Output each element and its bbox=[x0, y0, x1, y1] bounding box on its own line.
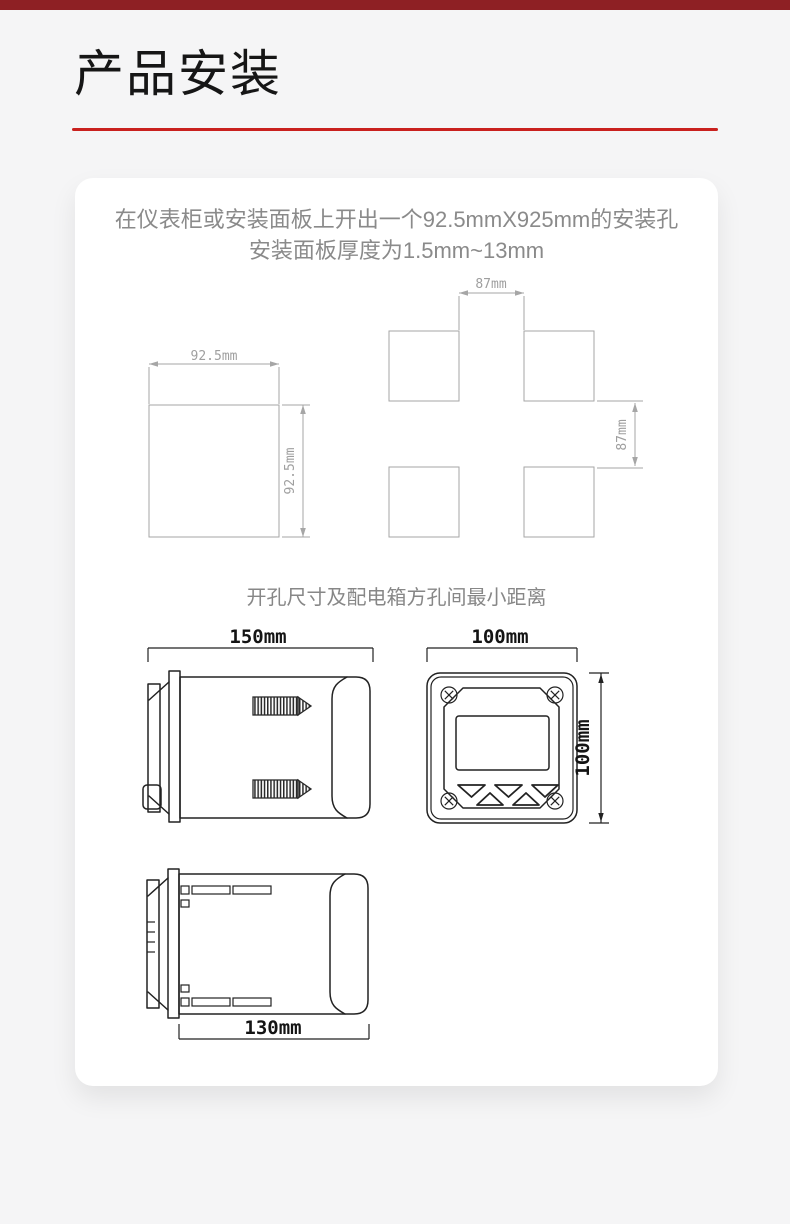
terminal-block bbox=[181, 886, 189, 894]
cutout-square-diagram: 92.5mm 92.5mm bbox=[149, 349, 310, 537]
latch bbox=[181, 985, 189, 992]
arrow-up-icon bbox=[300, 405, 306, 414]
side-view-150mm: 150mm bbox=[143, 626, 373, 822]
clamp-strip bbox=[147, 880, 159, 1008]
display-screen bbox=[456, 716, 549, 770]
button-down-icon bbox=[458, 785, 485, 797]
arrow-up-icon bbox=[632, 403, 638, 412]
device-body bbox=[179, 874, 368, 1014]
screw-icon bbox=[441, 687, 457, 703]
dim-label-100mm-height: 100mm bbox=[572, 719, 594, 776]
button-up-icon bbox=[477, 793, 503, 805]
clamp-ridge-top bbox=[253, 697, 298, 715]
arrow-down-icon bbox=[632, 457, 638, 466]
clamp-tab bbox=[143, 785, 161, 809]
dim-label-130mm: 130mm bbox=[244, 1017, 301, 1039]
dim-label-100mm-width: 100mm bbox=[471, 626, 528, 648]
side-view-130mm: 130mm bbox=[147, 869, 369, 1039]
button-up-icon bbox=[513, 793, 539, 805]
terminal-block bbox=[181, 998, 189, 1006]
dim-label-cutout-height: 92.5mm bbox=[283, 447, 298, 494]
clamp-strip bbox=[148, 684, 160, 812]
arrow-down-icon bbox=[300, 528, 306, 537]
dim-label-cutout-width: 92.5mm bbox=[191, 349, 238, 364]
cutout-square bbox=[149, 405, 279, 537]
terminal-block bbox=[192, 886, 230, 894]
arrow-left-icon bbox=[149, 361, 158, 367]
body-groove bbox=[332, 677, 347, 818]
front-view-100mm: 100mm bbox=[427, 626, 609, 823]
arrow-right-icon bbox=[270, 361, 279, 367]
terminal-block bbox=[233, 998, 271, 1006]
screw-icon bbox=[547, 793, 563, 809]
hole-top-right bbox=[524, 331, 594, 401]
hole-spacing-diagram: 87mm 87mm bbox=[389, 277, 643, 537]
arrow-right-icon bbox=[515, 290, 524, 296]
hole-top-left bbox=[389, 331, 459, 401]
top-accent-bar bbox=[0, 0, 790, 10]
button-down-icon bbox=[495, 785, 522, 797]
body-groove bbox=[330, 874, 345, 1014]
screw-icon bbox=[441, 793, 457, 809]
installation-card: 在仪表柜或安装面板上开出一个92.5mmX925mm的安装孔 安装面板厚度为1.… bbox=[75, 178, 718, 1086]
latch bbox=[181, 900, 189, 907]
hole-bottom-right bbox=[524, 467, 594, 537]
hole-bottom-left bbox=[389, 467, 459, 537]
arrow-left-icon bbox=[459, 290, 468, 296]
page-title: 产品安装 bbox=[74, 44, 282, 104]
technical-drawings: 92.5mm 92.5mm 87mm bbox=[75, 178, 718, 1086]
dim-label-gap-height: 87mm bbox=[615, 419, 630, 450]
arrow-up-icon bbox=[598, 674, 603, 683]
title-underline bbox=[72, 128, 718, 131]
bezel-flange bbox=[169, 671, 180, 822]
bezel-flange bbox=[168, 869, 179, 1018]
arrow-down-icon bbox=[598, 813, 603, 822]
screw-icon bbox=[547, 687, 563, 703]
terminal-block bbox=[192, 998, 230, 1006]
dim-label-150mm: 150mm bbox=[229, 626, 286, 648]
terminal-block bbox=[233, 886, 271, 894]
clamp-ridge-bottom bbox=[253, 780, 298, 798]
product-installation-page: 产品安装 在仪表柜或安装面板上开出一个92.5mmX925mm的安装孔 安装面板… bbox=[0, 0, 790, 1224]
dim-label-gap-width: 87mm bbox=[475, 277, 506, 292]
button-down-icon bbox=[532, 785, 558, 797]
